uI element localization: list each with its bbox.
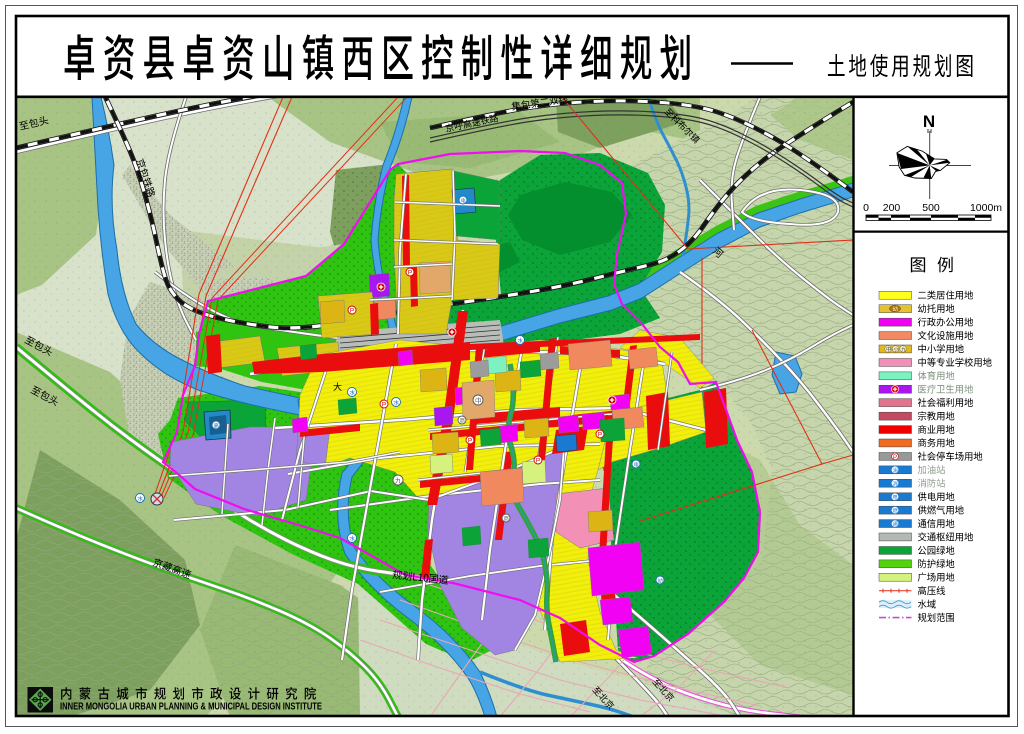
svg-text:0: 0 — [863, 202, 869, 214]
svg-text:P: P — [408, 270, 412, 277]
svg-text:200: 200 — [883, 202, 901, 214]
svg-text:N: N — [923, 112, 935, 131]
svg-text:1000m: 1000m — [970, 202, 1002, 214]
svg-text:P: P — [598, 432, 602, 439]
svg-text:INNER MONGOLIA URBAN PLANNING: INNER MONGOLIA URBAN PLANNING & MUNICIPA… — [60, 702, 322, 713]
svg-text:P: P — [468, 438, 472, 445]
svg-text:P: P — [350, 308, 354, 315]
svg-text:P: P — [893, 455, 897, 461]
svg-text:P: P — [536, 458, 540, 465]
svg-text:500: 500 — [922, 202, 940, 214]
svg-text:P: P — [382, 402, 386, 409]
